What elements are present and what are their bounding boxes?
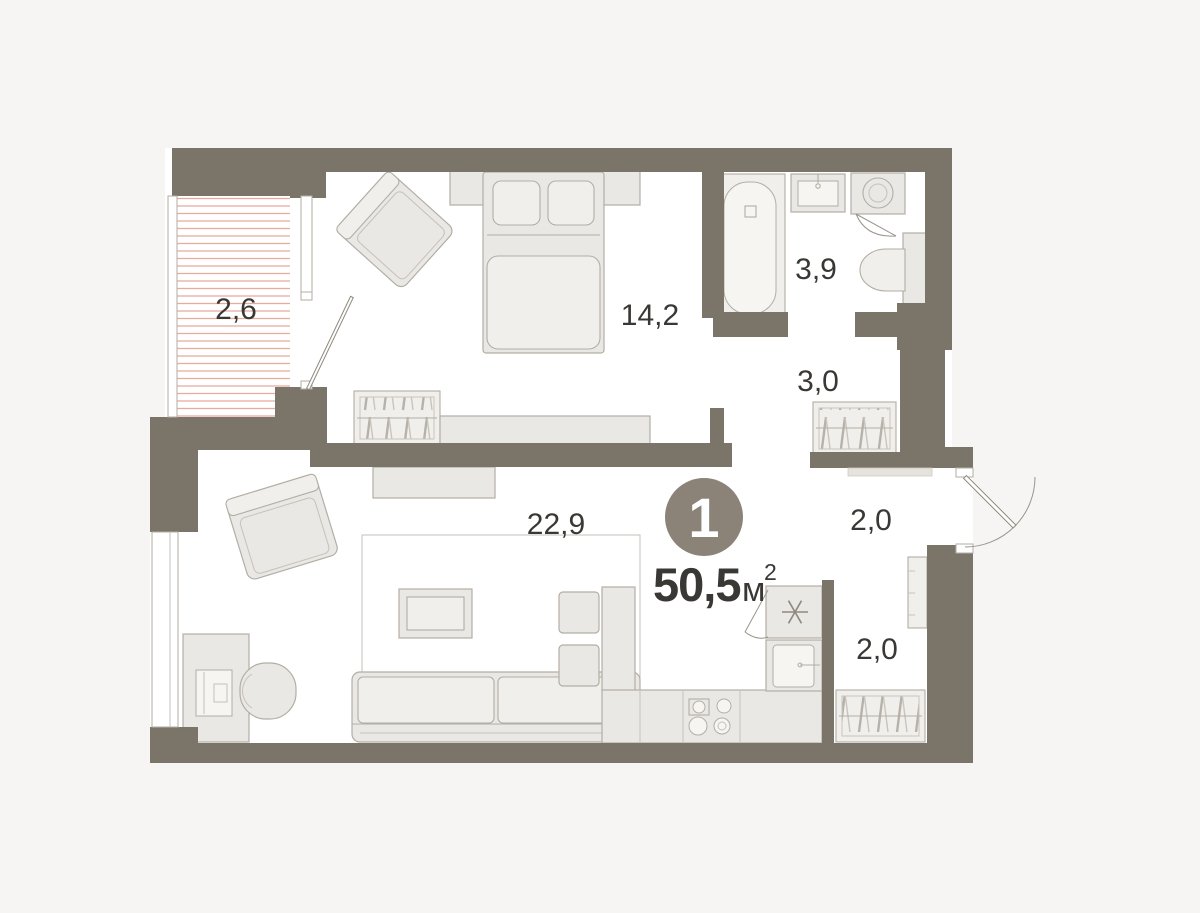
stool [559,645,599,686]
wall-right-bathroom [925,148,952,310]
stool [559,592,599,633]
kitchen-tall-cabinet [602,587,635,691]
unit-number: 1 [688,486,719,549]
wall-pillar [290,172,326,198]
desk [183,634,249,742]
hall-wardrobe [836,690,925,742]
unit-area-value: 50,5 [653,558,740,611]
fridge [766,586,822,638]
blanket [487,256,600,349]
wall-hall-top [810,452,900,468]
sideboard [373,467,495,498]
doormat [848,468,932,476]
wall-bathroom-bottom-left [713,312,788,337]
room-label-dressing: 3,0 [797,365,839,398]
wall-pilaster [710,408,724,445]
wall-bottom [150,743,973,763]
living-window [152,532,178,727]
unit-area-superscript: 2 [764,559,777,585]
wall-bathroom-left [702,148,724,318]
sofa-cushion [358,677,494,723]
dressing-wardrobe [813,402,896,455]
toilet-cistern [903,233,927,305]
entry-door-jamb [956,544,973,553]
wall-block [275,387,327,420]
washing-machine [851,173,905,214]
balcony-glazing [168,196,177,417]
wall-bedroom-living [310,443,732,467]
kitchen-counter [602,690,822,743]
floor-plan: 2,6 14,2 3,9 3,0 22,9 2,0 2,0 1 50,5 м 2 [0,0,1200,913]
room-label-living: 22,9 [527,508,585,541]
bathtub [715,174,785,322]
wall-right-lower [927,545,973,763]
kitchen-sink-unit [766,640,822,691]
room-label-bedroom: 14,2 [621,299,679,332]
room-label-hall-upper: 2,0 [850,504,892,537]
wall-top [172,148,952,172]
floor-plan-svg: 2,6 14,2 3,9 3,0 22,9 2,0 2,0 1 50,5 м 2 [0,0,1200,913]
wall-entry-jog [900,447,973,468]
pillow [493,181,540,225]
hall-shelf [908,557,927,628]
double-bed [483,172,604,353]
wall-right-hall [900,350,945,447]
room-label-balcony: 2,6 [215,293,257,326]
balcony-door-jamb [301,292,312,300]
entry-door-jamb [956,468,973,477]
coffee-table [399,589,472,638]
bedroom-dresser [354,391,440,445]
toilet-bowl [860,249,905,291]
bedroom-low-cabinet [440,416,650,445]
unit-area-unit: м [742,571,765,609]
wall-right-chunk [897,303,952,350]
wall-kitchen-hall [822,580,834,743]
wall-balcony-top [172,172,292,196]
desk-chair [240,663,296,719]
room-label-bathroom: 3,9 [795,253,837,286]
wall-left-upper [150,420,198,532]
room-label-hall-lower: 2,0 [856,633,898,666]
bathroom-sink [791,174,845,212]
balcony-window [301,196,312,292]
pillow [548,181,594,225]
